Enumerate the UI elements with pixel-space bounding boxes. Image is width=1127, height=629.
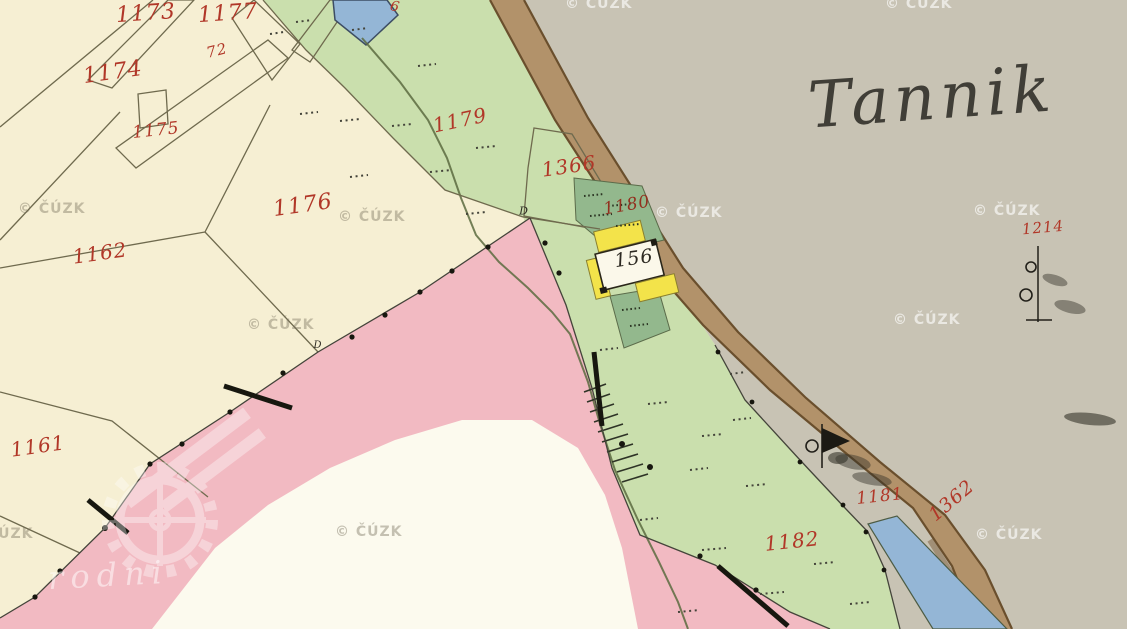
cuzk-watermark: © ČÚZK (338, 209, 406, 225)
parcel-label-1181: 1181 (856, 486, 905, 508)
cuzk-watermark: © ČÚZK (655, 205, 723, 221)
cuzk-watermark: © ČÚZK (885, 0, 953, 12)
cuzk-watermark: © ČÚZK (565, 0, 633, 12)
cuzk-watermark: © ČÚZK (335, 524, 403, 540)
cuzk-watermark: © ČÚZK (0, 526, 34, 542)
cuzk-watermark: © ČÚZK (893, 312, 961, 328)
cuzk-watermark: © ČÚZK (18, 201, 86, 217)
watermark-word: rodni (47, 553, 170, 597)
cuzk-watermark: © ČÚZK (973, 203, 1041, 219)
parcel-label-156: 156 (613, 247, 655, 271)
parcel-label-1214: 1214 (1021, 219, 1064, 238)
parcel-label-D: D (313, 341, 322, 351)
cuzk-watermark: © ČÚZK (247, 317, 315, 333)
parcel-label-D: D (519, 206, 529, 217)
map-canvas[interactable]: Tannik 117311777211741175117611621161117… (0, 0, 1127, 629)
parcel-label-1182: 1182 (764, 528, 821, 554)
parcel-label-1177: 1177 (197, 1, 258, 27)
cuzk-watermark: © ČÚZK (975, 527, 1043, 543)
parcel-label-1173: 1173 (115, 1, 176, 27)
parcel-label-1175: 1175 (132, 120, 181, 142)
